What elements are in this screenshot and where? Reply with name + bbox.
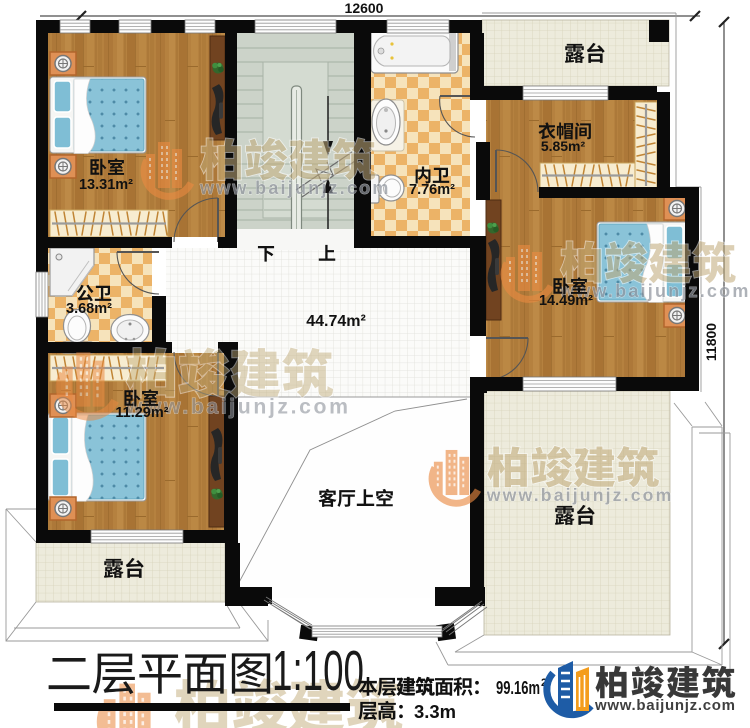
svg-text:14.49m²: 14.49m² — [539, 293, 593, 309]
svg-text:7.76m²: 7.76m² — [409, 182, 455, 198]
svg-text:13.31m²: 13.31m² — [79, 177, 133, 193]
svg-text:5.85m²: 5.85m² — [541, 138, 586, 154]
svg-text:1:100: 1:100 — [272, 639, 364, 703]
svg-text:11800: 11800 — [703, 323, 719, 361]
svg-text:3.3m: 3.3m — [414, 702, 456, 722]
svg-text:99.16m: 99.16m — [496, 678, 540, 698]
svg-text:12600: 12600 — [345, 0, 384, 16]
svg-text:11.29m²: 11.29m² — [115, 405, 168, 421]
svg-text:3.68m²: 3.68m² — [66, 301, 112, 317]
svg-text:44.74m²: 44.74m² — [306, 313, 366, 330]
svg-text:www.baijunjz.com: www.baijunjz.com — [594, 697, 736, 714]
